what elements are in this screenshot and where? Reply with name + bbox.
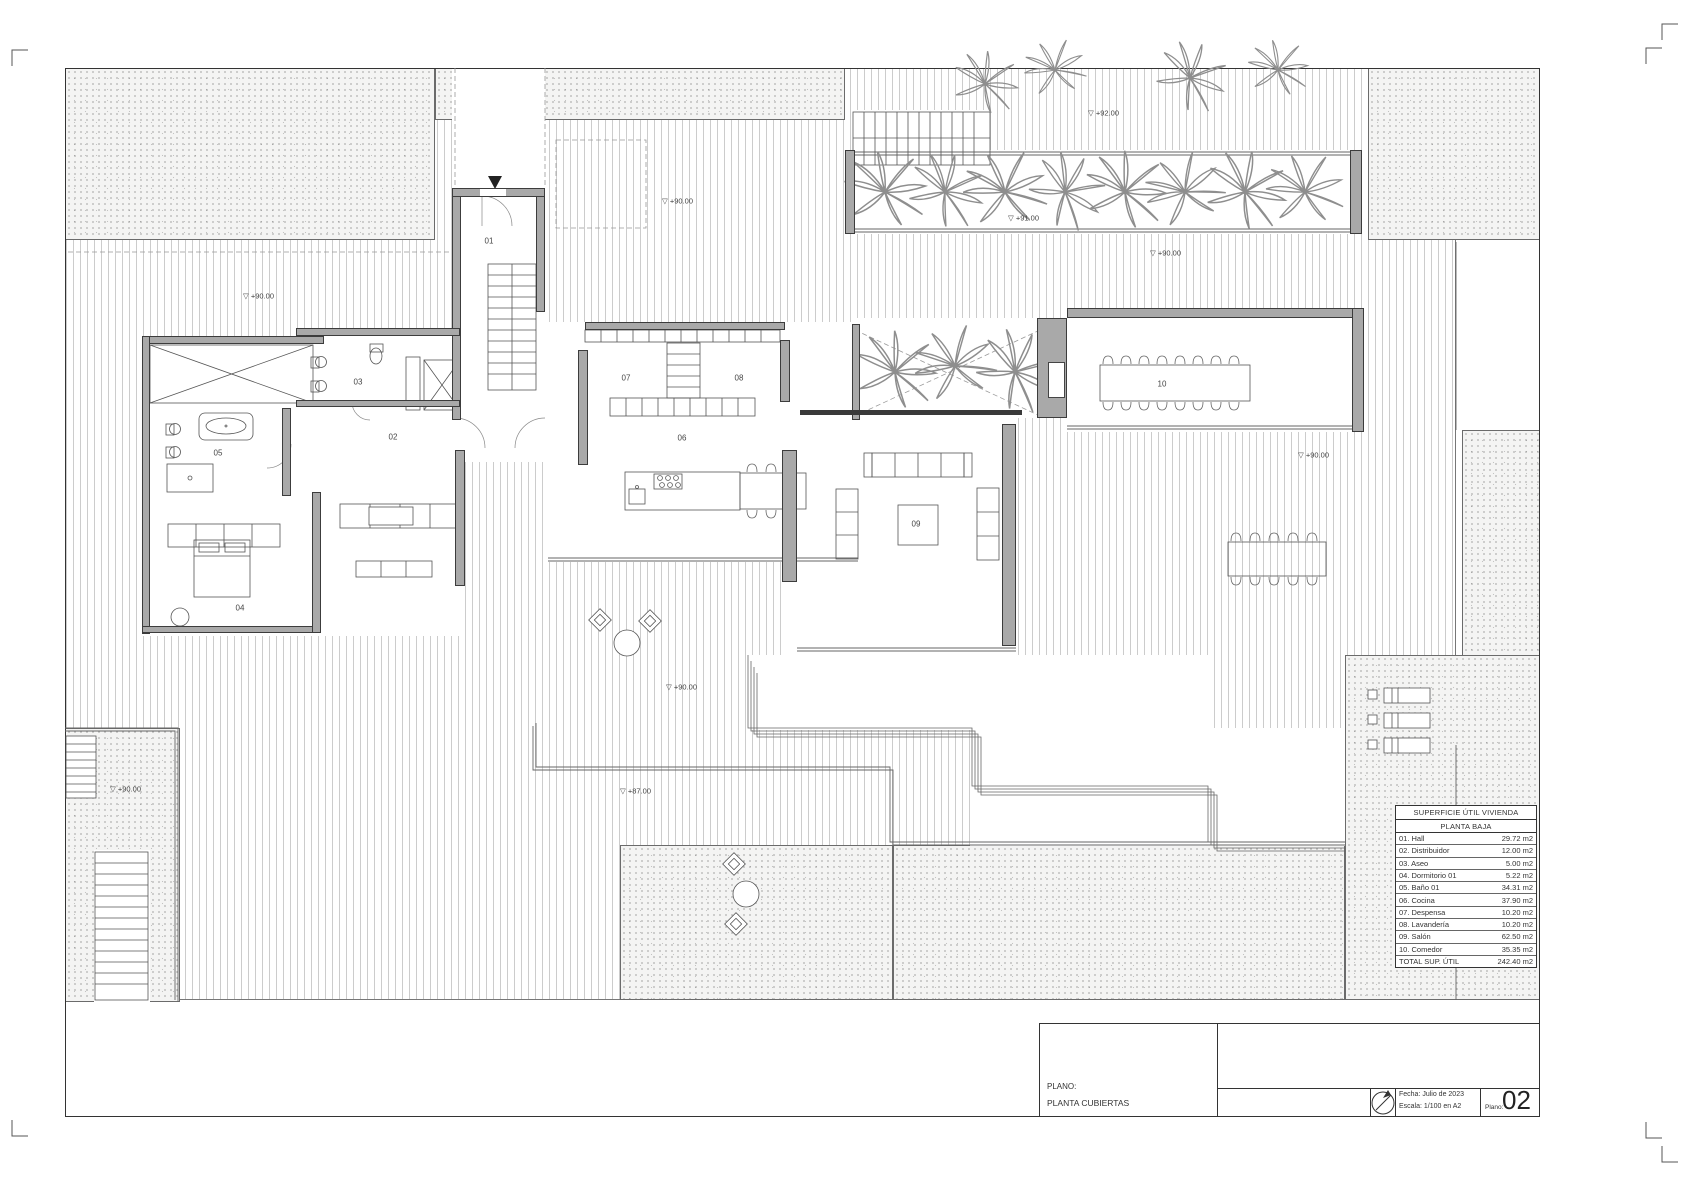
area-table: SUPERFICIE ÚTIL VIVIENDA PLANTA BAJA 01.… [1395, 805, 1537, 968]
room-label: 04 [236, 604, 245, 613]
lounger-icon [1384, 688, 1430, 703]
toilet-icon [370, 348, 382, 364]
kitchen-fixtures [585, 330, 806, 518]
wall [800, 410, 1022, 415]
room-label: 07 [622, 374, 631, 383]
bed-icon [194, 540, 250, 597]
door-opening [480, 189, 506, 196]
level-annotation: ▽ +90.00 [666, 683, 697, 692]
area-table-title: SUPERFICIE ÚTIL VIVIENDA [1396, 806, 1536, 820]
patio-table-icon [614, 630, 640, 656]
wall-niche [1048, 362, 1065, 398]
sink-icon [170, 424, 181, 435]
palm-tree-icon [947, 44, 1025, 118]
room-label: 01 [485, 237, 494, 246]
level-annotation: ▽ +90.00 [110, 785, 141, 794]
palm-trees [845, 30, 1348, 422]
level-annotation: ▽ +87.00 [620, 787, 651, 796]
sofa-icon [836, 489, 858, 559]
area-table-subtitle: PLANTA BAJA [1396, 820, 1536, 834]
wall [312, 492, 321, 633]
garden-stairs [66, 736, 148, 1000]
wall [1352, 308, 1364, 432]
wall [780, 340, 790, 402]
drawing-sheet: 01020304050607080910 ▽ +92.00▽ +90.00▽ +… [0, 0, 1684, 1191]
floor-plan-drawing [0, 0, 1684, 1191]
wall [1067, 308, 1363, 318]
wall [282, 408, 291, 496]
wall [845, 150, 855, 234]
level-annotation: ▽ +90.00 [1298, 451, 1329, 460]
outdoor-dining-table [1228, 542, 1326, 576]
palm-tree-icon [903, 314, 1004, 411]
lounger-icon [1384, 713, 1430, 728]
ramp-stairs [853, 112, 990, 165]
patio-furniture [589, 609, 759, 936]
bench-icon [356, 561, 432, 577]
plano-name: PLANTA CUBIERTAS [1047, 1098, 1129, 1108]
plano-label: PLANO: [1047, 1082, 1076, 1091]
table-total-row: TOTAL SUP. ÚTIL 242.40 m2 [1396, 956, 1536, 967]
sheet-no-label: Plano: [1485, 1104, 1503, 1111]
dining-furniture [1100, 356, 1326, 585]
total-label: TOTAL SUP. ÚTIL [1399, 958, 1459, 966]
sofa-icon [977, 488, 999, 560]
level-annotation: ▽ +91.00 [1008, 214, 1039, 223]
table-row: 09. Salón62.50 m2 [1396, 931, 1536, 943]
room-label: 02 [389, 433, 398, 442]
table-row: 08. Lavandería10.20 m2 [1396, 919, 1536, 931]
entry-stairs [488, 264, 536, 390]
north-arrow-icon [1372, 1090, 1394, 1114]
dining-table [1100, 365, 1250, 401]
table-row: 02. Distribuidor12.00 m2 [1396, 845, 1536, 857]
armchair-icon [171, 608, 189, 626]
wall [296, 400, 460, 407]
palm-tree-icon [845, 152, 926, 226]
level-annotation: ▽ +90.00 [1150, 249, 1181, 258]
bathroom-fixtures [166, 413, 253, 492]
total-value: 242.40 m2 [1498, 958, 1533, 966]
level-annotation: ▽ +90.00 [243, 292, 274, 301]
wall [296, 328, 460, 336]
table-row: 04. Dormitorio 015.22 m2 [1396, 870, 1536, 882]
room-label: 09 [912, 520, 921, 529]
room-label: 05 [214, 449, 223, 458]
sink-icon [316, 381, 327, 392]
table-row: 06. Cocina37.90 m2 [1396, 894, 1536, 906]
wall [1002, 424, 1016, 646]
shelving-icon [667, 343, 700, 398]
wall [782, 450, 797, 582]
salon-furniture [836, 453, 999, 560]
wall [852, 324, 860, 420]
palm-tree-icon [849, 325, 942, 411]
wall [1350, 150, 1362, 234]
palm-tree-icon [1016, 139, 1118, 240]
room-label: 03 [354, 378, 363, 387]
level-annotation: ▽ +90.00 [662, 197, 693, 206]
palm-tree-icon [1079, 145, 1172, 231]
wall [585, 322, 785, 330]
table-row: 03. Aseo5.00 m2 [1396, 858, 1536, 870]
sink-icon [316, 357, 327, 368]
sun-loungers [1368, 688, 1430, 753]
wall [142, 336, 150, 634]
bathtub-icon [199, 413, 253, 440]
sink-icon [629, 489, 645, 504]
lounger-icon [1384, 738, 1430, 753]
sink-icon [170, 447, 181, 458]
closet-and-bedroom [150, 345, 458, 626]
room-label: 08 [735, 374, 744, 383]
patio-table-icon [733, 881, 759, 907]
table-row: 10. Comedor35.35 m2 [1396, 944, 1536, 956]
table-row: 05. Baño 0134.31 m2 [1396, 882, 1536, 894]
wall [578, 350, 588, 465]
table-row: 07. Despensa10.20 m2 [1396, 907, 1536, 919]
room-label: 06 [678, 434, 687, 443]
fecha-text: Fecha: Julio de 2023 [1399, 1091, 1464, 1098]
palm-tree-icon [1145, 30, 1238, 120]
sheet-number: 02 [1502, 1087, 1531, 1113]
table-row: 01. Hall29.72 m2 [1396, 833, 1536, 845]
room-label: 10 [1158, 380, 1167, 389]
wall [455, 450, 465, 586]
wall [536, 188, 545, 312]
wall [452, 188, 461, 420]
palm-tree-icon [1017, 32, 1091, 103]
pool-steps [748, 655, 1345, 851]
palm-tree-icon [1261, 148, 1347, 229]
escala-text: Escala: 1/100 en A2 [1399, 1103, 1461, 1110]
wall [142, 626, 320, 633]
palm-tree-icon [1248, 40, 1307, 94]
shower-icon [167, 464, 213, 492]
area-table-rows: 01. Hall29.72 m202. Distribuidor12.00 m2… [1396, 833, 1536, 956]
wall [142, 336, 324, 344]
level-annotation: ▽ +92.00 [1088, 109, 1119, 118]
deck-boundaries [65, 152, 1456, 1002]
